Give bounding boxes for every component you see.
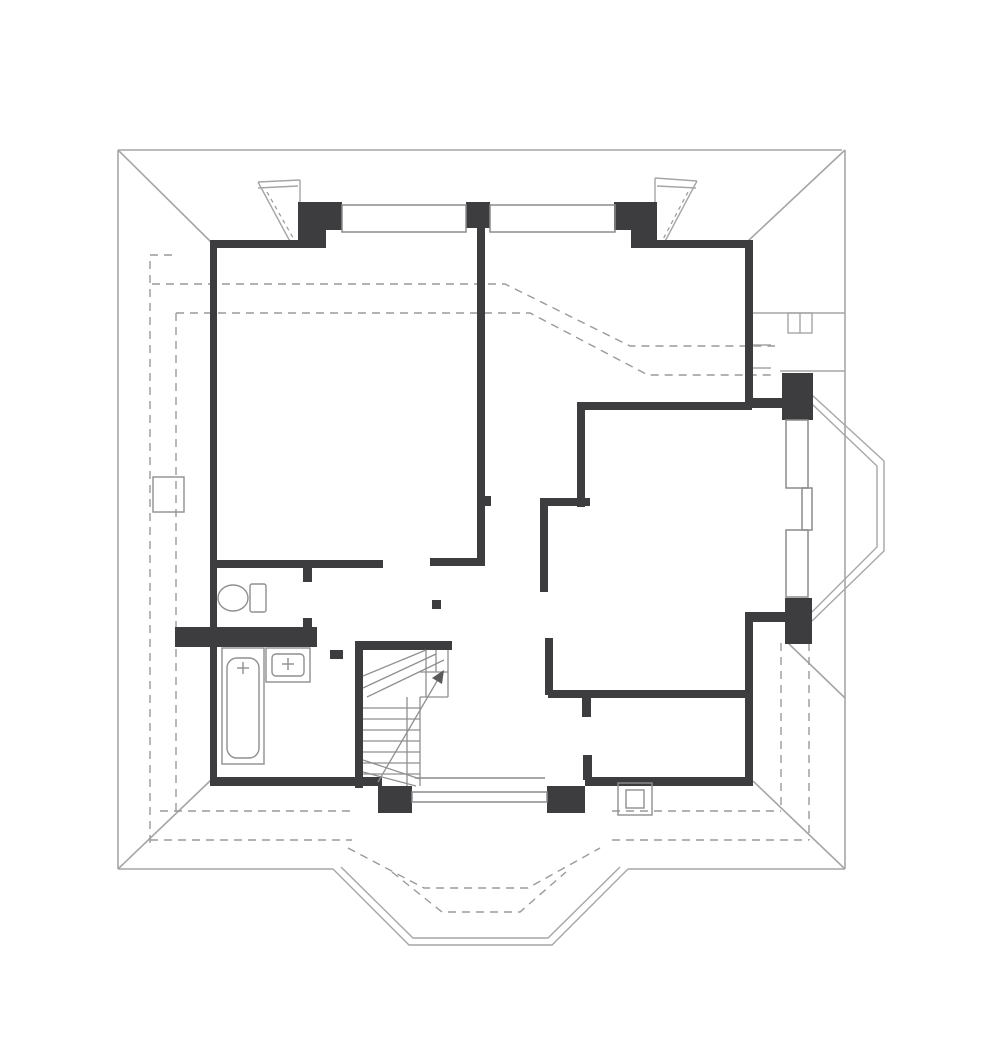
window-north-right: [490, 205, 615, 232]
staircase: [363, 650, 448, 786]
bay-east-roof-outline: [812, 395, 884, 621]
dormer-right-outline: [655, 178, 697, 247]
floorplan-document: [0, 0, 999, 1062]
chimney-right: [618, 783, 652, 815]
bathtub: [222, 648, 264, 764]
bay-south-roof-outline: [333, 867, 628, 945]
walls: [175, 202, 813, 813]
window-south: [412, 778, 547, 802]
floor-plan-svg: [0, 0, 999, 1062]
window-north-left: [342, 205, 466, 232]
washbasin: [266, 648, 310, 682]
chimney-left: [153, 477, 184, 512]
terrace-outline: [748, 313, 845, 371]
toilet: [218, 584, 266, 612]
bay-windows-east: [786, 420, 812, 597]
